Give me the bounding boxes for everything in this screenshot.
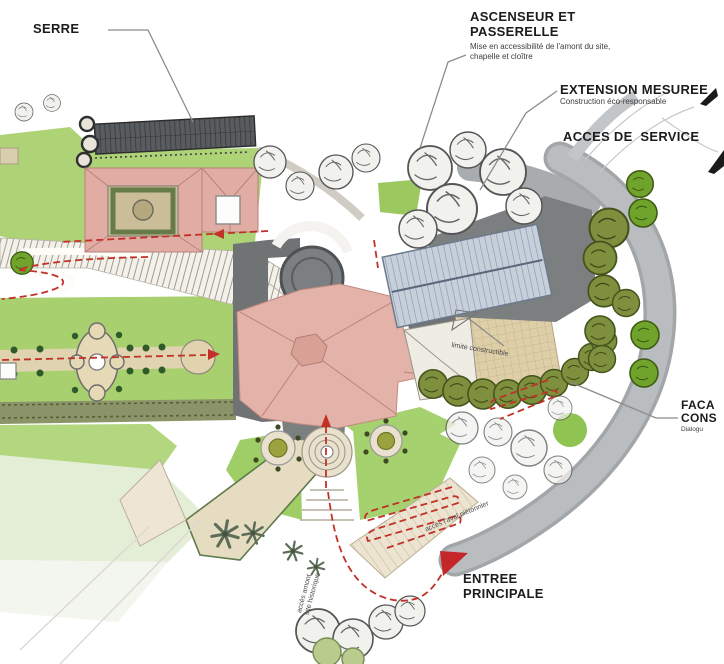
label-extension: EXTENSION MESUREE Construction éco-respo…: [560, 82, 724, 107]
extension-subtitle: Construction éco-responsable: [560, 97, 724, 107]
label-facade: FACA CONS Dialogu: [681, 399, 724, 435]
small-terrace: [0, 148, 18, 164]
small-pavilion: [0, 363, 16, 379]
ascenseur-title-line1: ASCENSEUR ET: [470, 9, 660, 24]
label-acces-service: ACCES DE SERVICE: [563, 129, 699, 144]
entree-title-line2: PRINCIPALE: [463, 586, 544, 601]
label-entree: ENTREE PRINCIPALE: [463, 571, 544, 601]
ascenseur-title-line2: PASSERELLE: [470, 24, 660, 39]
label-serre: SERRE: [33, 21, 79, 36]
entree-title-line1: ENTREE: [463, 571, 544, 586]
ascenseur-subtitle-line2: chapelle et cloître: [470, 52, 660, 62]
facade-title-line2: CONS: [681, 412, 724, 425]
facade-subtitle: Dialogu: [681, 425, 724, 435]
label-ascenseur: ASCENSEUR ET PASSERELLE Mise en accessib…: [470, 9, 660, 62]
ascenseur-subtitle-line1: Mise en accessibilité de l'amont du site…: [470, 42, 660, 52]
extension-title: EXTENSION MESUREE: [560, 82, 724, 97]
